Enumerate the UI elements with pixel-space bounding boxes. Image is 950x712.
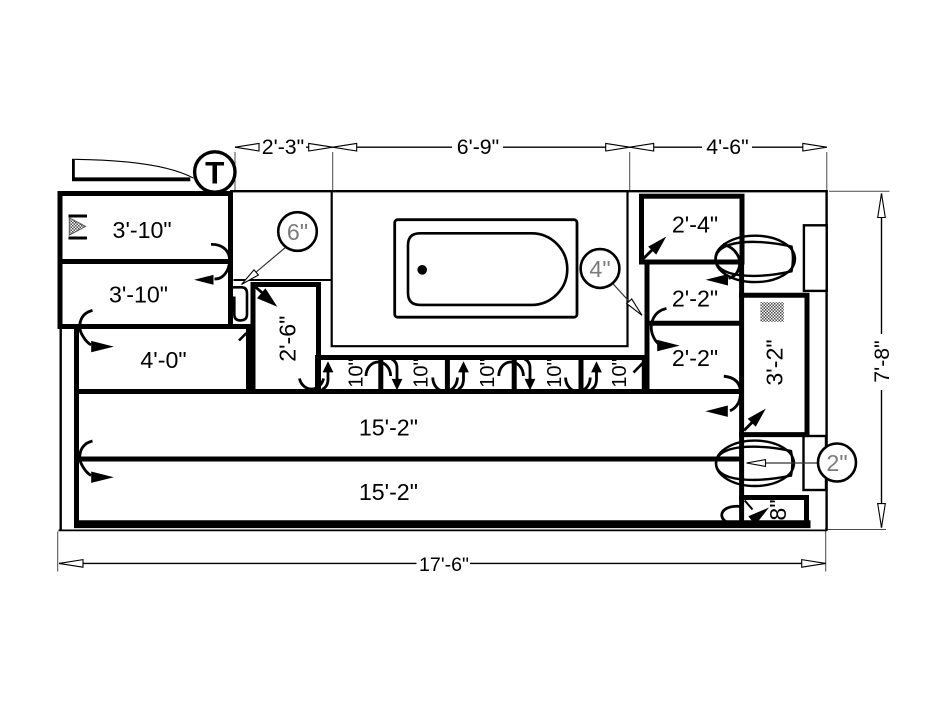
- svg-text:2'-2": 2'-2": [672, 285, 718, 311]
- svg-text:10": 10": [477, 358, 499, 387]
- svg-text:4'-0": 4'-0": [140, 347, 186, 373]
- svg-text:8": 8": [765, 499, 791, 520]
- svg-text:2'-3": 2'-3": [262, 135, 304, 159]
- svg-text:15'-2": 15'-2": [359, 479, 418, 505]
- svg-text:2'-4": 2'-4": [672, 212, 718, 238]
- svg-text:T: T: [205, 155, 224, 191]
- svg-text:17'-6": 17'-6": [419, 554, 469, 576]
- svg-text:2'-6": 2'-6": [274, 316, 300, 362]
- svg-text:10": 10": [609, 358, 631, 387]
- svg-text:15'-2": 15'-2": [359, 414, 418, 440]
- svg-text:3'-10": 3'-10": [113, 217, 172, 243]
- svg-text:10": 10": [346, 358, 368, 387]
- svg-text:10": 10": [410, 358, 432, 387]
- svg-text:4": 4": [589, 256, 610, 282]
- svg-text:6'-9": 6'-9": [457, 135, 499, 159]
- svg-text:6": 6": [287, 219, 308, 245]
- svg-text:3'-10": 3'-10": [109, 281, 168, 307]
- svg-text:7'-8": 7'-8": [870, 340, 894, 382]
- svg-text:4'-6": 4'-6": [706, 135, 748, 159]
- svg-text:2'-2": 2'-2": [672, 345, 718, 371]
- svg-text:2": 2": [826, 450, 847, 476]
- svg-text:10": 10": [544, 358, 566, 387]
- svg-text:3'-2": 3'-2": [761, 339, 787, 385]
